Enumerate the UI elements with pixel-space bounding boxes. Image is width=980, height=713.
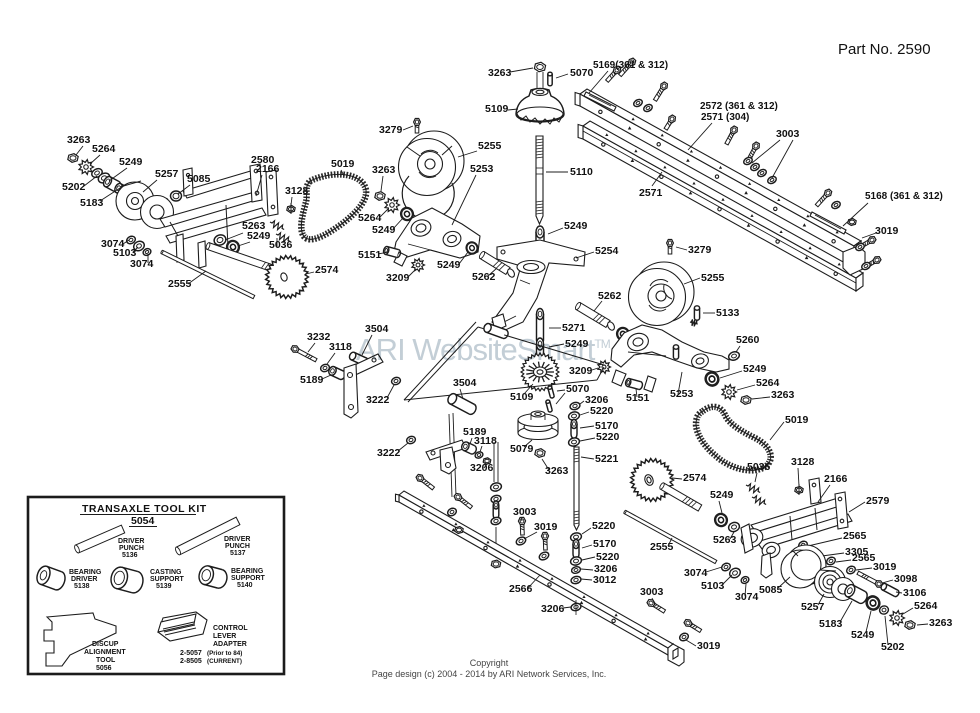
svg-text:3074: 3074 [684,567,708,579]
svg-text:5220: 5220 [592,520,616,532]
svg-text:5189: 5189 [300,374,324,386]
svg-text:3263: 3263 [67,134,91,146]
svg-text:5220: 5220 [590,405,614,417]
svg-text:DRIVER: DRIVER [118,538,144,545]
svg-text:5263: 5263 [713,534,737,546]
svg-text:CASTING: CASTING [150,569,182,576]
svg-text:3263: 3263 [545,465,569,477]
svg-text:5202: 5202 [62,181,86,193]
svg-text:3222: 3222 [377,447,401,459]
svg-text:3128: 3128 [791,456,815,468]
svg-text:DISCUP: DISCUP [92,641,119,648]
svg-text:3118: 3118 [329,341,352,353]
svg-text:5253: 5253 [470,163,494,175]
svg-text:3206: 3206 [541,603,565,615]
svg-text:3019: 3019 [697,640,721,652]
svg-text:5079: 5079 [510,443,534,455]
svg-text:5262: 5262 [598,290,622,302]
svg-text:2166: 2166 [256,163,280,175]
svg-text:2166: 2166 [824,473,848,485]
svg-text:5168 (361 & 312): 5168 (361 & 312) [865,191,943,202]
svg-text:5255: 5255 [701,272,725,284]
svg-text:5136: 5136 [122,552,138,559]
svg-text:SUPPORT: SUPPORT [231,575,266,582]
svg-text:2579: 2579 [866,495,890,507]
svg-text:5249: 5249 [710,489,734,501]
svg-text:5170: 5170 [593,538,617,550]
svg-text:5169(361 & 312): 5169(361 & 312) [593,60,668,71]
svg-text:5019: 5019 [331,158,355,170]
svg-text:5137: 5137 [230,550,246,557]
svg-text:5257: 5257 [801,601,825,613]
svg-text:5249: 5249 [437,259,461,271]
svg-text:5070: 5070 [570,67,594,79]
svg-text:LEVER: LEVER [213,633,236,640]
svg-text:PUNCH: PUNCH [119,545,144,552]
svg-text:3106: 3106 [903,587,927,599]
svg-text:Page design (c) 2004 - 2014 by: Page design (c) 2004 - 2014 by ARI Netwo… [372,669,607,679]
svg-text:5133: 5133 [716,307,740,319]
svg-text:5085: 5085 [759,584,783,596]
svg-text:5264: 5264 [92,143,116,155]
svg-text:3019: 3019 [534,521,558,533]
svg-text:5202: 5202 [881,641,905,653]
svg-text:5183: 5183 [80,197,104,209]
svg-text:5036: 5036 [269,239,293,251]
svg-text:3263: 3263 [929,617,953,629]
svg-text:5103: 5103 [701,580,725,592]
svg-text:TOOL: TOOL [96,657,116,664]
svg-text:3263: 3263 [771,389,795,401]
svg-text:5253: 5253 [670,388,694,400]
svg-text:5249: 5249 [247,230,271,242]
svg-text:5140: 5140 [237,582,253,589]
svg-text:3003: 3003 [513,506,537,518]
svg-text:Part No. 2590: Part No. 2590 [838,41,931,58]
svg-text:(Prior to 84): (Prior to 84) [207,650,242,657]
svg-text:5264: 5264 [756,377,780,389]
svg-text:3504: 3504 [453,377,477,389]
svg-text:5264: 5264 [914,600,938,612]
svg-text:2565: 2565 [843,530,867,542]
svg-text:3019: 3019 [873,561,897,573]
svg-text:5056: 5056 [96,665,112,672]
svg-text:2572 (361 & 312): 2572 (361 & 312) [700,101,778,112]
svg-text:Copyright: Copyright [470,658,509,668]
svg-text:5255: 5255 [478,140,502,152]
svg-text:3012: 3012 [593,574,617,586]
svg-text:3279: 3279 [379,124,403,136]
svg-text:5249: 5249 [564,220,588,232]
svg-text:5260: 5260 [736,334,760,346]
svg-text:3074: 3074 [735,591,759,603]
svg-text:ARI WebsiteSmartTM: ARI WebsiteSmartTM [356,332,611,367]
svg-text:5249: 5249 [119,156,143,168]
svg-text:TRANSAXLE TOOL KIT: TRANSAXLE TOOL KIT [82,503,207,515]
svg-text:3074: 3074 [130,258,154,270]
svg-text:5110: 5110 [570,166,593,178]
svg-text:5151: 5151 [626,392,650,404]
svg-text:2-5057: 2-5057 [180,650,202,657]
svg-text:5220: 5220 [596,551,620,563]
svg-text:5109: 5109 [485,103,509,115]
svg-text:3209: 3209 [386,272,410,284]
svg-text:5183: 5183 [819,618,843,630]
svg-text:3263: 3263 [372,164,396,176]
svg-text:5257: 5257 [155,168,179,180]
svg-text:5138: 5138 [74,583,90,590]
svg-text:DRIVER: DRIVER [71,576,97,583]
svg-text:BEARING: BEARING [69,569,102,576]
svg-text:5085: 5085 [187,173,211,185]
svg-text:2571 (304): 2571 (304) [701,112,749,123]
svg-text:5036: 5036 [747,461,771,473]
svg-text:5109: 5109 [510,391,534,403]
svg-text:PUNCH: PUNCH [225,543,250,550]
svg-text:(CURRENT): (CURRENT) [207,658,242,665]
svg-text:5254: 5254 [595,245,619,257]
svg-text:3003: 3003 [776,128,800,140]
svg-text:2574: 2574 [315,264,339,276]
svg-text:3222: 3222 [366,394,390,406]
svg-text:3263: 3263 [488,67,512,79]
svg-text:5264: 5264 [358,212,382,224]
svg-text:3118: 3118 [474,435,497,447]
svg-text:5220: 5220 [596,431,620,443]
svg-text:3003: 3003 [640,586,664,598]
svg-text:BEARING: BEARING [231,568,264,575]
svg-text:SUPPORT: SUPPORT [150,576,185,583]
svg-text:ALIGNMENT: ALIGNMENT [84,649,126,656]
svg-text:CONTROL: CONTROL [213,625,248,632]
svg-text:3019: 3019 [875,225,899,237]
svg-text:2571: 2571 [639,187,663,199]
svg-text:3206: 3206 [470,462,494,474]
svg-text:5151: 5151 [358,249,382,261]
svg-text:3232: 3232 [307,331,331,343]
svg-text:2-8505: 2-8505 [180,658,202,665]
svg-text:5249: 5249 [372,224,396,236]
svg-text:2566: 2566 [509,583,533,595]
svg-text:5221: 5221 [595,453,619,465]
svg-text:5249: 5249 [743,363,767,375]
svg-text:2565: 2565 [852,552,876,564]
svg-text:3098: 3098 [894,573,918,585]
svg-text:DRIVER: DRIVER [224,536,250,543]
svg-text:5139: 5139 [156,583,172,590]
svg-text:5019: 5019 [785,414,809,426]
svg-text:2555: 2555 [168,278,192,290]
svg-text:ADAPTER: ADAPTER [213,641,247,648]
svg-text:2574: 2574 [683,472,707,484]
svg-text:5054: 5054 [131,515,155,527]
svg-text:5249: 5249 [851,629,875,641]
svg-text:3279: 3279 [688,244,712,256]
